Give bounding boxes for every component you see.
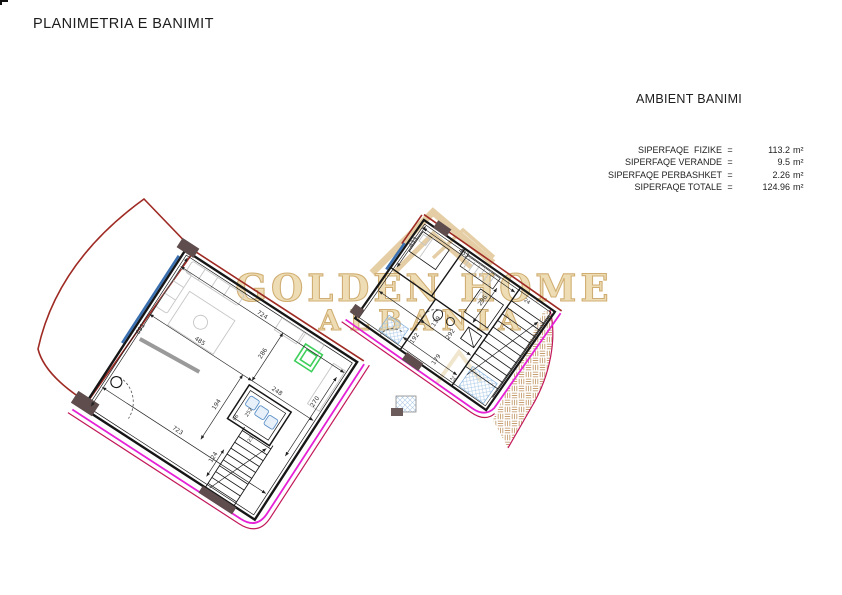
plan-canvas: GOLDEN HOME ALBANIA [0,0,842,595]
floor-plan-sheet: PLANIMETRIA E BANIMIT AMBIENT BANIMI SIP… [0,0,842,595]
staircase [198,426,275,515]
dim-label: 194 [211,398,223,412]
column-marker [109,374,124,389]
sheet-corner-mark [0,0,8,5]
veranda-boundary-outline [38,199,194,407]
dim-label: 248 [270,385,284,397]
watermark: GOLDEN HOME ALBANIA [235,212,612,383]
tv-unit [139,337,200,373]
wall-cap [177,238,200,258]
dim-label: 286 [257,347,269,361]
dim-label: 179 [430,353,442,367]
shaft-marker [295,344,323,372]
dim-label: 29 [449,375,458,384]
door-swing-arc [103,377,144,418]
railing-line [122,256,179,343]
dim-label: 723 [171,425,185,437]
dim-label: 270 [309,395,321,409]
exterior-fixture [391,396,416,416]
